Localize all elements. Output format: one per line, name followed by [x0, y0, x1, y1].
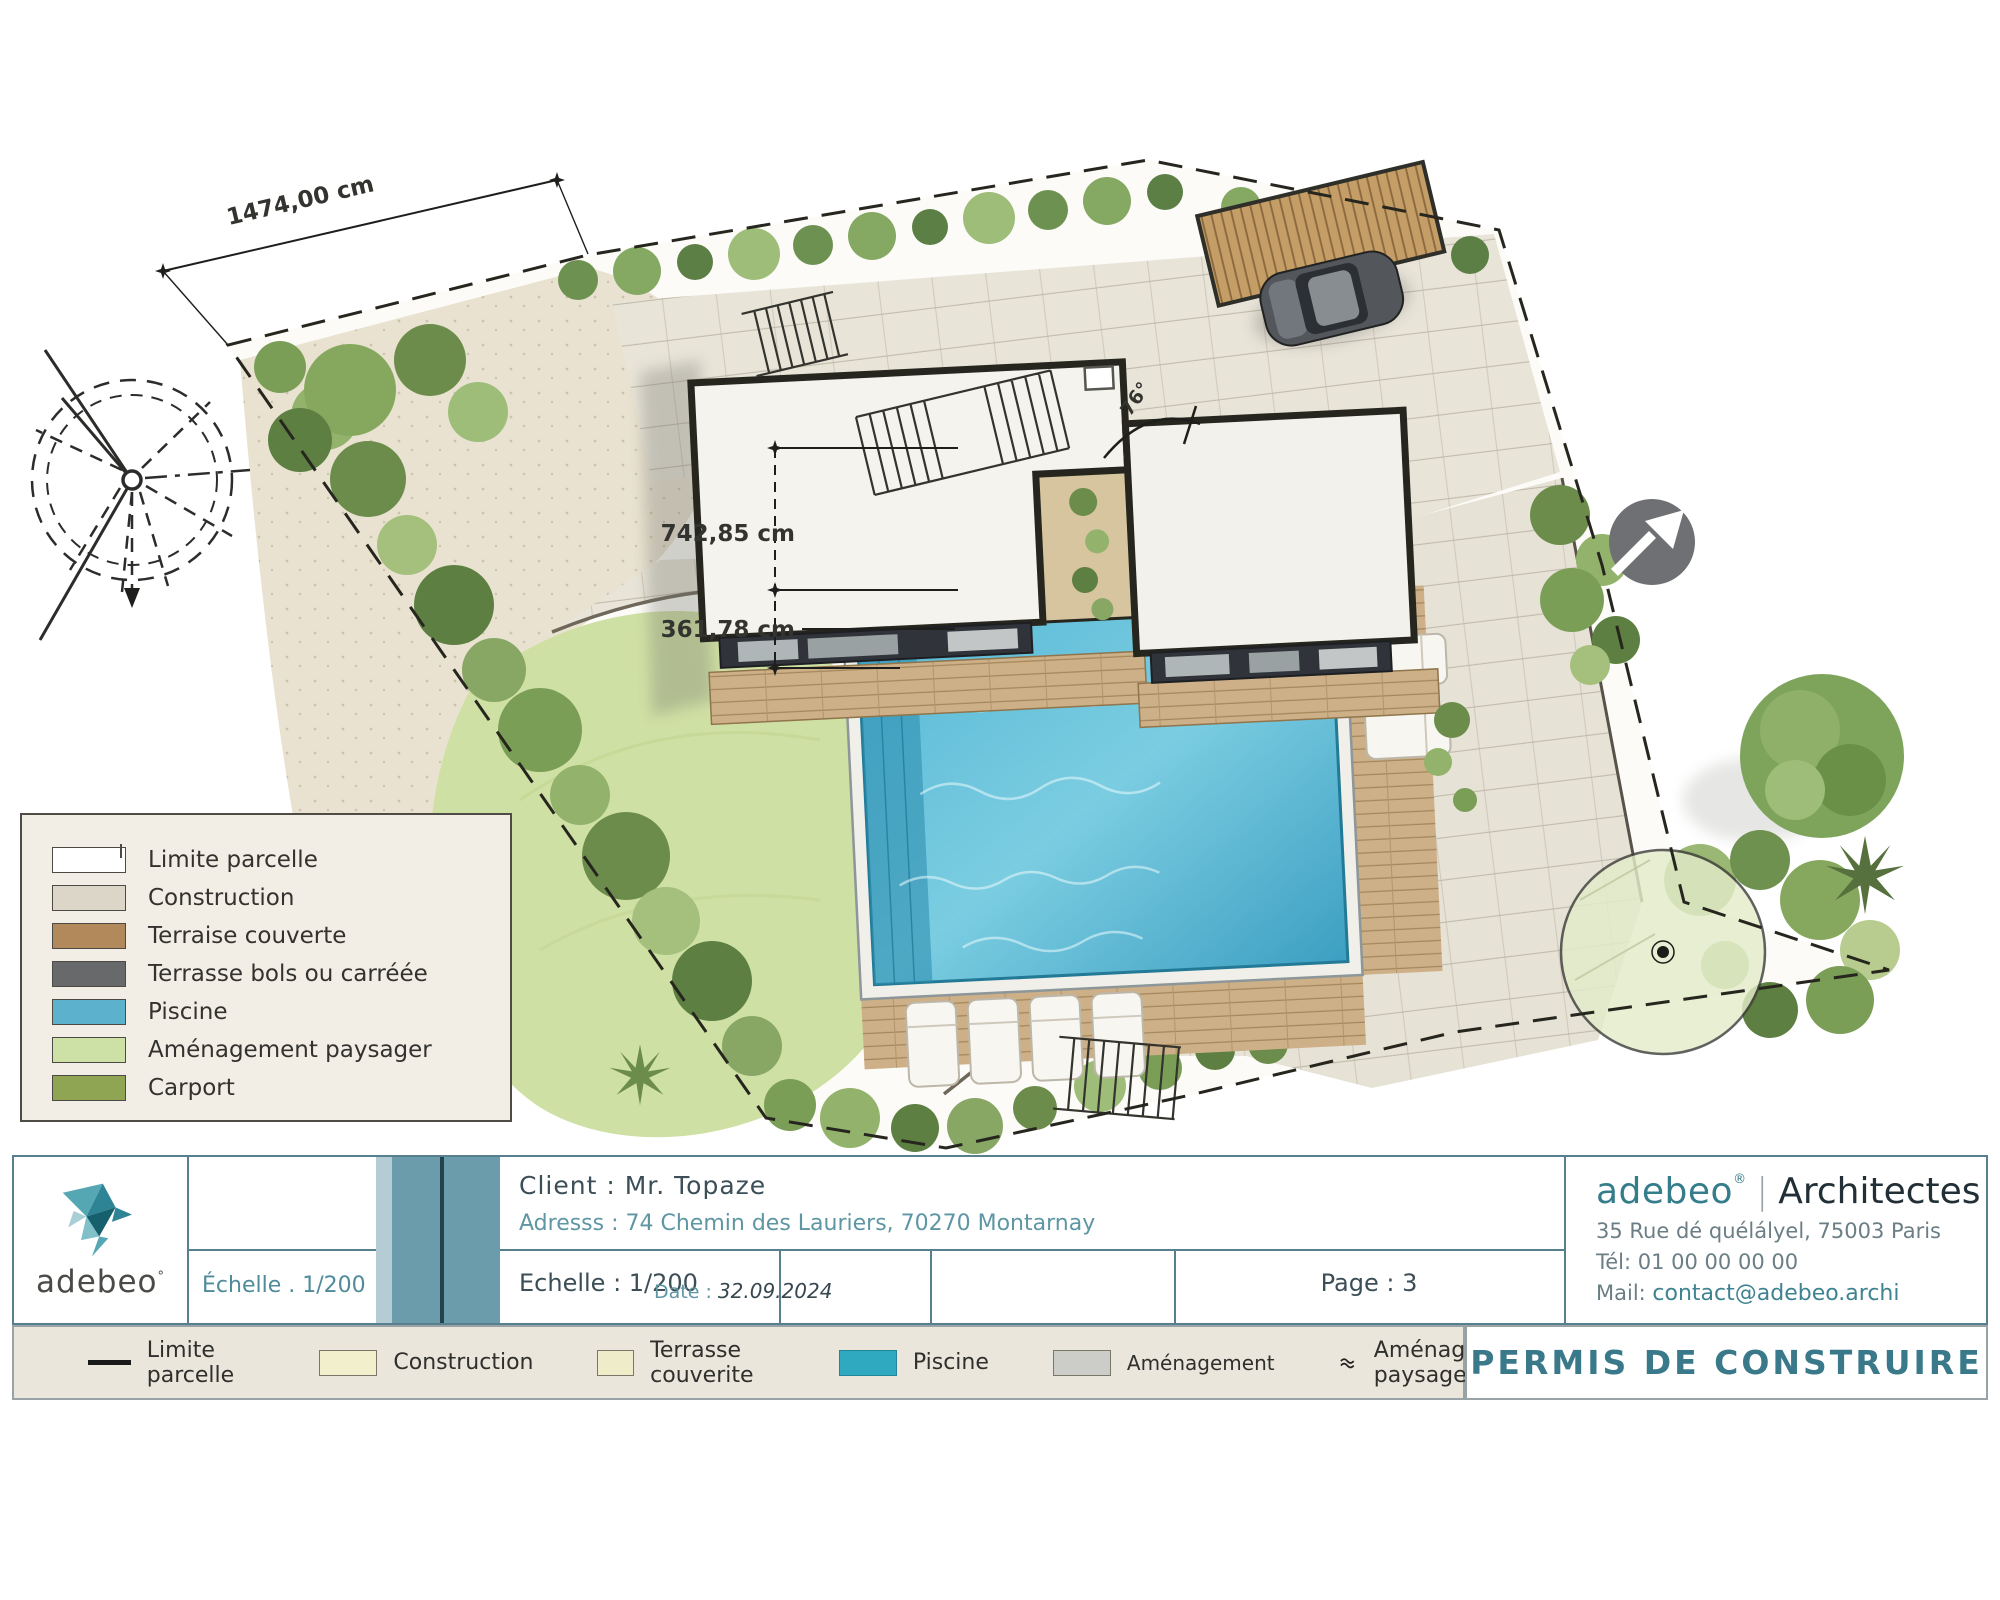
compass-rose-icon: [32, 350, 250, 640]
bottom-legend: Limite parcelle Construction Terrasse co…: [12, 1325, 1465, 1400]
limite-parcelle-swatch-icon: [52, 847, 126, 873]
date-value: 32.09.2024: [718, 1279, 833, 1303]
divider: [930, 1249, 932, 1323]
firm-mail-value: contact@adebeo.archi: [1652, 1281, 1899, 1306]
accent-stripe: [376, 1157, 392, 1323]
accent-stripe: [392, 1157, 440, 1323]
firm-name: adebeo®|Architectes: [1596, 1171, 1986, 1212]
amenagement-paysager-icon: [1339, 1353, 1358, 1373]
legend-item: Aménagement: [1053, 1350, 1275, 1376]
firm-block: adebeo®|Architectes 35 Rue dé quélályel,…: [1564, 1157, 1986, 1323]
logo-wordmark: adebeo°: [36, 1264, 165, 1300]
amenagement-paysager-swatch-icon: [52, 1037, 126, 1063]
divider: [187, 1157, 189, 1323]
legend-item: Limite parcelle: [22, 841, 510, 879]
legend-item: Piscine: [839, 1350, 989, 1376]
house-right-volume: [1125, 410, 1415, 683]
north-arrow-icon: [1609, 499, 1695, 585]
bottom-strip: Limite parcelle Construction Terrasse co…: [12, 1325, 1988, 1400]
accent-stripe: [444, 1157, 500, 1323]
amenagement-swatch-icon: [1053, 1350, 1111, 1376]
carport-swatch-icon: [52, 1075, 126, 1101]
legend-item: Piscine: [22, 993, 510, 1031]
legend-item-label: Construction: [148, 885, 294, 911]
legend-item-label: Aménagement paysager: [148, 1037, 432, 1063]
dim-top-label: 1474,00 cm: [224, 171, 376, 231]
title-block: adebeo° Échelle . 1/200 Client : Mr. Top…: [12, 1155, 1988, 1325]
firm-address: 35 Rue dé quélályel, 75003 Paris: [1596, 1219, 1986, 1243]
legend-item-label: Terraise couverte: [148, 923, 346, 949]
page-field: Page : 3: [1174, 1269, 1564, 1297]
plan-sheet: 1474,00 cm 742,85 cm 361,78 cm 76° Limit…: [0, 0, 2000, 1600]
legend-item: Terrasse bols ou carréée: [22, 955, 510, 993]
divider: [500, 1249, 1564, 1251]
legend-item: Construction: [319, 1350, 533, 1376]
legend-item: Construction: [22, 879, 510, 917]
legend-item: Carport: [22, 1069, 510, 1107]
terrasse-couverte-swatch-icon: [597, 1350, 634, 1376]
legend-item-label: Limite parcelle: [148, 847, 318, 873]
divider: [187, 1249, 376, 1251]
permit-title: PERMIS DE CONSTRUIRE: [1470, 1343, 1983, 1382]
logo: adebeo°: [14, 1157, 187, 1323]
piscine-swatch-icon: [839, 1350, 897, 1376]
address-field: Adresss : 74 Chemin des Lauriers, 70270 …: [519, 1211, 1095, 1236]
legend-item: Aménagement paysager: [22, 1031, 510, 1069]
legend-item-label: Carport: [148, 1075, 235, 1101]
terrasse-bois-swatch-icon: [52, 961, 126, 987]
client-field: Client : Mr. Topaze: [519, 1171, 766, 1200]
limite-parcelle-line-icon: [88, 1360, 131, 1365]
legend-item: Terraise couverte: [22, 917, 510, 955]
date-field: Date : 32.09.2024: [654, 1279, 832, 1303]
piscine-swatch-icon: [52, 999, 126, 1025]
permit-title-box: PERMIS DE CONSTRUIRE: [1465, 1325, 1988, 1400]
legend-item: Limite parcelle: [88, 1338, 255, 1388]
dim-offset-label: 361,78 cm: [661, 617, 795, 643]
scale-left-label: Échelle . 1/200: [202, 1273, 366, 1298]
legend-box: Limite parcelle Construction Terraise co…: [20, 813, 512, 1122]
legend-item-label: Piscine: [148, 999, 228, 1025]
adebeo-bird-logo-icon: [53, 1180, 149, 1262]
construction-swatch-icon: [52, 885, 126, 911]
tree-canopy-symbol: [1561, 850, 1765, 1054]
legend-item-label: Terrasse bols ou carréée: [148, 961, 428, 987]
dim-height-label: 742,85 cm: [661, 521, 795, 547]
firm-mail: Mail: contact@adebeo.archi: [1596, 1281, 1986, 1306]
terrasse-couverte-swatch-icon: [52, 923, 126, 949]
legend-item: Terrasse couverite: [597, 1338, 774, 1388]
construction-swatch-icon: [319, 1350, 377, 1376]
firm-phone: Tél: 01 00 00 00 00: [1596, 1250, 1986, 1274]
